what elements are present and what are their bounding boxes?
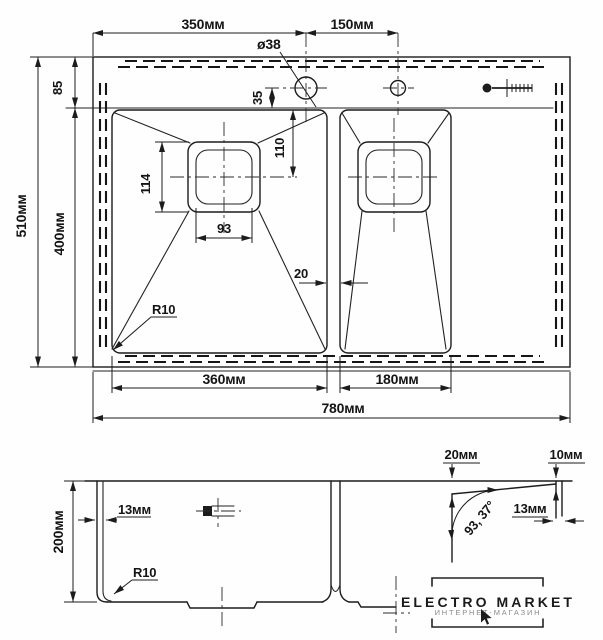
clamp-icon [196,498,241,527]
dim-200-label: 200мм [50,510,66,553]
dim-85-label: 85 [50,81,65,95]
sink-outline [66,57,570,371]
section-dimensions [64,481,158,602]
screw-icon [483,79,533,97]
hole-diameter-label: ø38 [257,36,281,52]
drain-centerlines [222,576,410,633]
dim-510-label: 510мм [13,194,29,237]
radius-label-top: R10 [152,302,175,317]
dim-13-wall-label: 13мм [118,502,151,517]
technical-drawing: 350мм 150мм ø38 85 35 110 114 93 20 R10 … [0,0,603,640]
watermark-logo: ELECTRO MARKET ИНТЕРНЕТ-МАГАЗИН [401,578,575,627]
dim-93-label: 93 [217,221,231,236]
dim-400-label: 400мм [51,212,67,255]
dim-20-rim-label: 20мм [445,447,478,462]
dim-13-edge-label: 13мм [514,501,547,516]
drawing-canvas: 350мм 150мм ø38 85 35 110 114 93 20 R10 … [0,0,603,640]
dim-10-edge-label: 10мм [550,447,583,462]
dim-35-label: 35 [250,91,265,105]
dim-114-label: 114 [138,173,153,194]
section-outline [85,481,572,608]
dim-360-label: 360мм [202,371,245,387]
dim-780-label: 780мм [321,400,364,416]
centerlines [170,33,441,233]
edge-detail: 20мм 10мм 13мм 93, 37° [443,447,585,562]
radius-label-section: R10 [133,565,156,580]
angle-label: 93, 37° [461,498,498,538]
top-view: 350мм 150мм ø38 85 35 110 114 93 20 R10 … [13,16,570,423]
dim-110-label: 110 [272,138,287,158]
dim-180-label: 180мм [375,371,418,387]
dim-150-label: 150мм [330,16,373,32]
logo-bracket-top [432,578,543,586]
dim-350-label: 350мм [181,16,224,32]
dim-20-label: 20 [294,266,308,281]
